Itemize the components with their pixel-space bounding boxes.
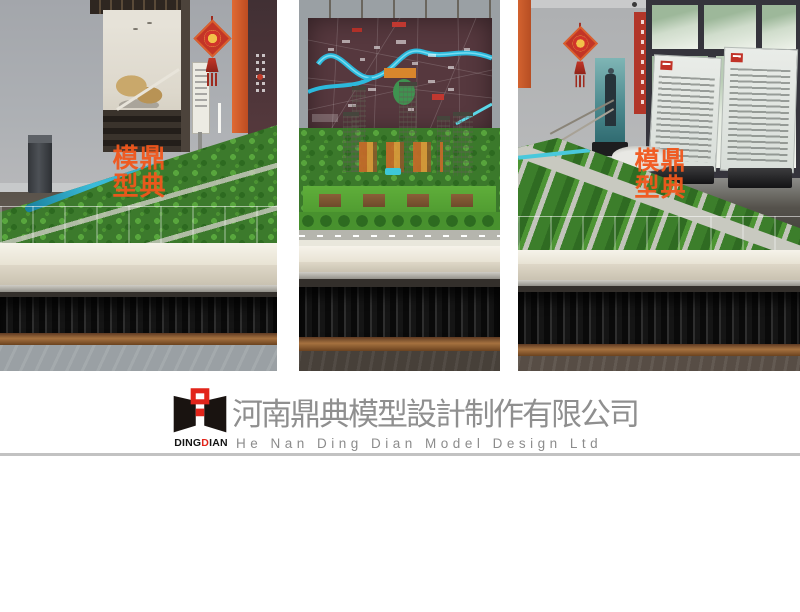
lawn-plot (319, 194, 341, 207)
orange-pillar (232, 0, 248, 133)
model-tree-row (299, 212, 500, 232)
company-name-english: He Nan Ding Dian Model Design Ltd (236, 436, 656, 451)
knot-diamond (193, 19, 231, 57)
board-text-lines (727, 68, 791, 164)
photo-showroom-center (299, 0, 500, 371)
dingdian-logo-icon (172, 388, 228, 436)
orange-pillar (518, 0, 531, 88)
photo-showroom-right: 模 鼎 型 典 (518, 0, 800, 371)
model-tower (343, 112, 359, 172)
marble-floor (0, 345, 277, 371)
model-pool (385, 168, 401, 175)
dingdian-seal-watermark: 模 鼎 型 典 (634, 148, 686, 202)
table-marble-top (0, 243, 277, 265)
logo-word-accent: D (201, 437, 209, 449)
window-pane (762, 5, 796, 49)
dingdian-seal-watermark: 模 鼎 型 典 (112, 146, 166, 202)
seal-char: 鼎 (139, 146, 166, 174)
bird-mark (133, 28, 138, 30)
chinese-knot-ornament (562, 23, 599, 87)
model-lowrise-buildings (359, 142, 443, 172)
table-marble-front (0, 265, 277, 285)
knot-strings (575, 75, 584, 87)
seal-char: 模 (112, 146, 139, 174)
table-rail (0, 285, 277, 292)
company-name-chinese: 河南鼎典模型設計制作有限公司 (232, 389, 652, 434)
seal-char: 型 (634, 175, 660, 202)
table-slat-base (0, 297, 277, 333)
marble-floor (518, 356, 800, 371)
house-icon (660, 61, 672, 71)
table-slat-base (299, 287, 500, 337)
table-shadow (299, 279, 500, 287)
logo-glyph (172, 388, 228, 436)
table-marble-front (299, 262, 500, 272)
logo-wordmark: DINGDIAN (168, 437, 234, 449)
table-marble-top (518, 250, 800, 264)
logo-word-part: DING (174, 437, 201, 449)
knot-strings (207, 73, 217, 86)
house-icon (731, 53, 743, 62)
seal-char: 典 (139, 174, 166, 202)
lawn-plot (363, 194, 385, 207)
knot-diamond (562, 26, 597, 61)
chinese-knot-ornament (192, 16, 232, 86)
board-stand-base (728, 168, 792, 188)
seal-char: 典 (660, 175, 686, 202)
security-camera (632, 2, 637, 7)
table-bronze-trim (299, 337, 500, 351)
window-pane (704, 5, 756, 49)
knot-tassel (206, 58, 219, 72)
table-slat-base (518, 292, 800, 344)
logo-word-part: IAN (209, 437, 228, 449)
table-marble-top (299, 246, 500, 262)
table-rail (299, 272, 500, 279)
lawn-plot (451, 194, 473, 207)
table-bronze-trim (0, 333, 277, 345)
light-strip (218, 103, 221, 133)
glass-fence (518, 216, 800, 251)
poster-red-dot (257, 74, 263, 80)
window-pane (652, 5, 698, 49)
maroon-poster-board (248, 0, 277, 139)
trash-bin (28, 135, 52, 193)
staircase-opening (103, 10, 183, 152)
bird-mark (147, 22, 152, 24)
table-bronze-trim (518, 344, 800, 356)
product-image-canvas: 模 鼎 型 典 (0, 0, 800, 612)
model-tower (453, 112, 473, 176)
photo-showroom-left: 模 鼎 型 典 (0, 0, 277, 371)
seal-char: 鼎 (660, 148, 686, 175)
divider-line (0, 453, 800, 456)
table-marble-front (518, 264, 800, 280)
lawn-plot (407, 194, 429, 207)
glass-display-board (720, 47, 798, 174)
door-frame (181, 0, 190, 152)
knot-tassel (574, 61, 586, 74)
seal-char: 型 (112, 174, 139, 202)
dark-floor (299, 351, 500, 371)
seal-char: 模 (634, 148, 660, 175)
glass-fence (0, 206, 277, 244)
